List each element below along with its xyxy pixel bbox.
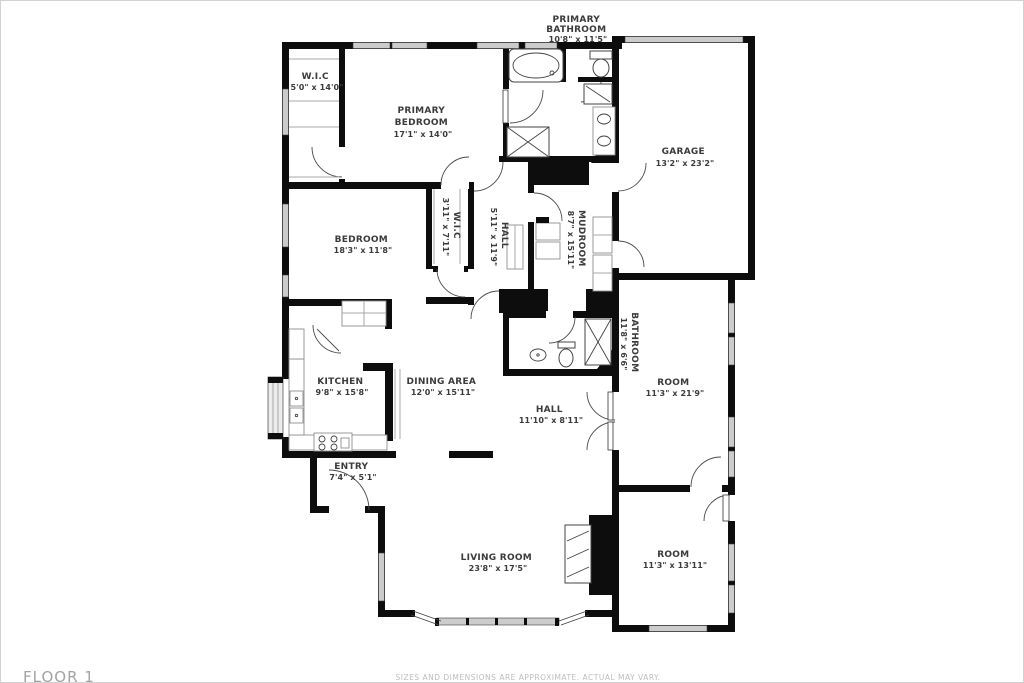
room-label-wic-small: W.I.C 3'11" x 7'11" [441, 198, 461, 257]
room-label-bedroom: BEDROOM 18'3" x 11'8" [334, 235, 393, 255]
floor-plan-svg: PRIMARY BATHROOM 10'8" x 11'5" W.I.C 5'0… [1, 1, 1023, 682]
room-label-dining: DINING AREA 12'0" x 15'11" [407, 377, 480, 397]
room-label-wic-primary: W.I.C 5'0" x 14'0" [291, 72, 344, 92]
bedroom-closet [342, 301, 386, 326]
kitchen-box-window [268, 377, 289, 439]
interior-walls [282, 36, 735, 625]
fixtures [289, 49, 619, 595]
room-label-primary-bedroom: PRIMARY BEDROOM 17'1" x 14'0" [394, 106, 453, 139]
room-label-living: LIVING ROOM 23'8" x 17'5" [461, 553, 536, 573]
shower-small-fixture [584, 84, 612, 104]
disclaimer-text: SIZES AND DIMENSIONS ARE APPROXIMATE. AC… [395, 673, 660, 682]
garage-door [625, 37, 743, 43]
room-label-kitchen: KITCHEN 9'8" x 15'8" [316, 377, 369, 397]
room-label-entry: ENTRY 7'4" x 5'1" [329, 462, 376, 482]
room-label-primary-bathroom: PRIMARY BATHROOM 10'8" x 11'5" [546, 15, 609, 44]
dining-counter [395, 369, 400, 439]
room-label-mudroom: MUDROOM 8'7" x 15'11" [566, 210, 586, 270]
room-label-hall-lower: HALL 11'10" x 8'11" [519, 405, 583, 425]
exterior-walls [282, 36, 755, 632]
shower-large-fixture [507, 127, 549, 157]
bathtub-fixture [509, 49, 563, 82]
room-label-room-bottom: ROOM 11'3" x 13'11" [643, 550, 707, 570]
floor-plan-page: PRIMARY BATHROOM 10'8" x 11'5" W.I.C 5'0… [0, 0, 1024, 683]
room-label-bathroom: BATHROOM 11'8" x 6'6" [619, 312, 639, 375]
floor-label: FLOOR 1 [23, 668, 95, 682]
room-label-room-right: ROOM 11'3" x 21'9" [646, 378, 705, 398]
bathroom2-fixtures [530, 319, 611, 367]
room-label-garage: GARAGE 13'2" x 23'2" [656, 147, 715, 168]
toilet-fixture-primary [590, 51, 612, 77]
room-label-hall-upper: HALL 5'11" x 11'9" [489, 208, 509, 267]
vanity-fixture [593, 107, 615, 155]
fireplace [565, 515, 619, 595]
